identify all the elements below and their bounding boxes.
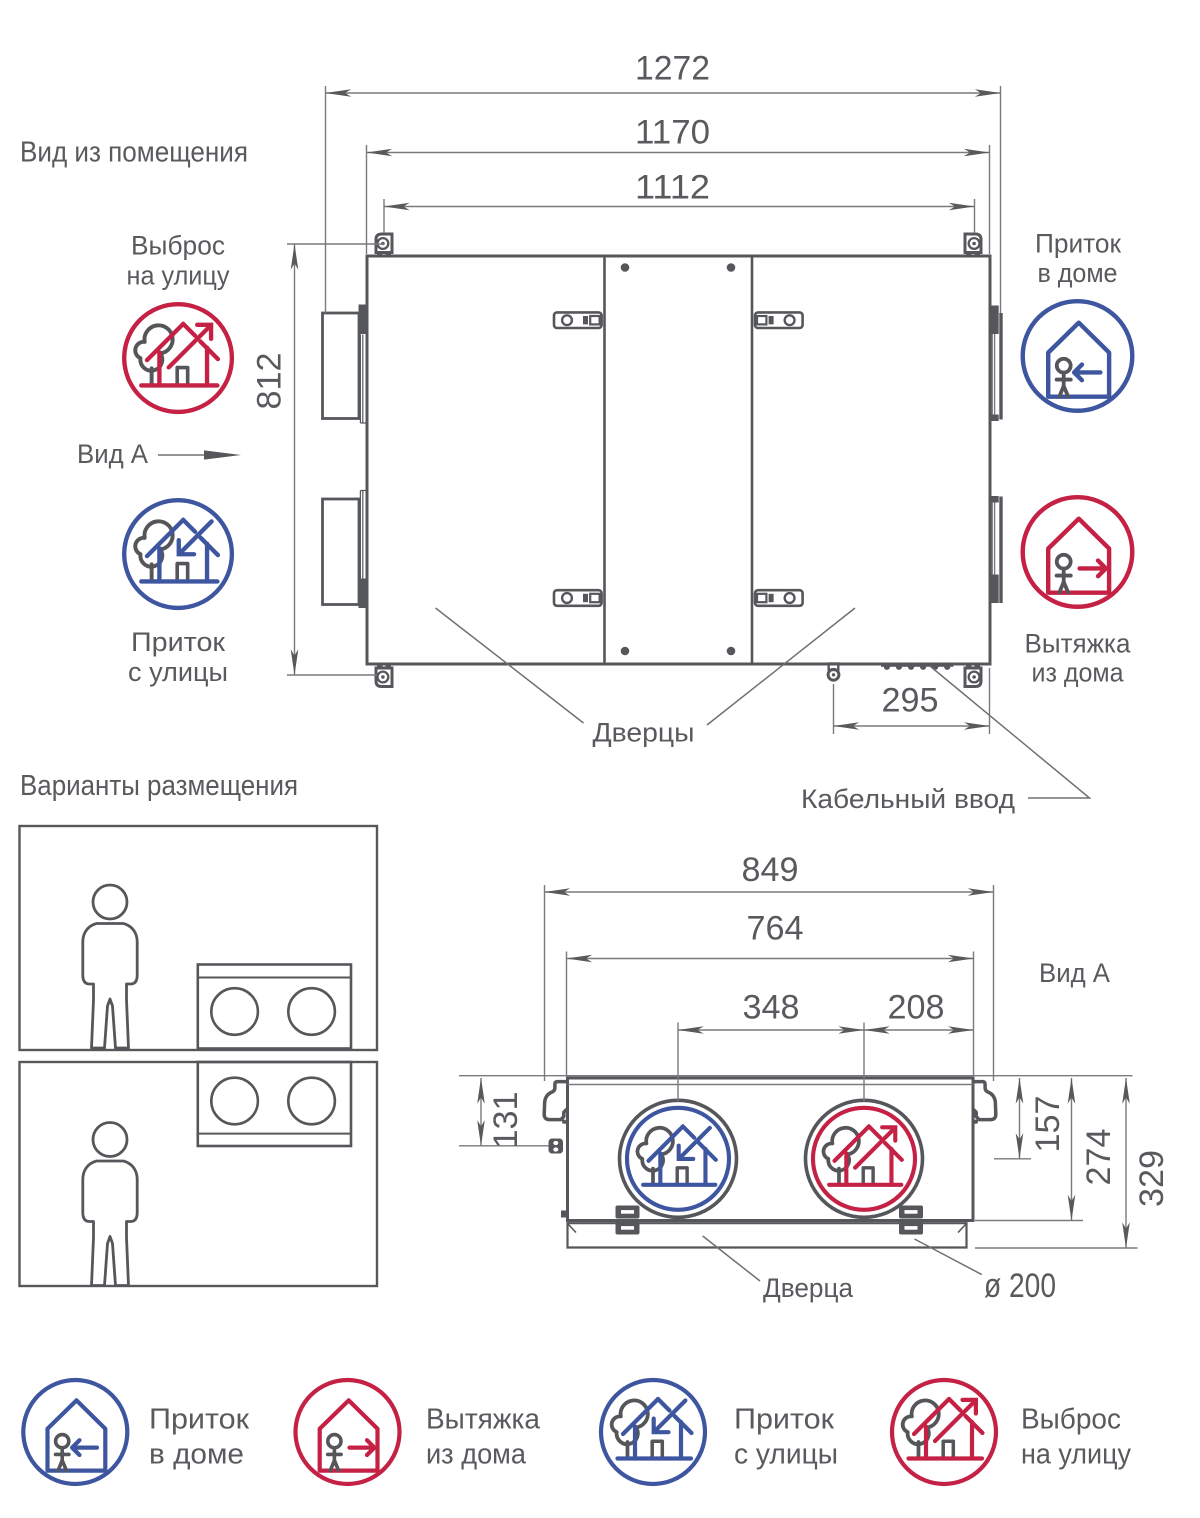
- svg-text:с улицы: с улицы: [734, 1439, 838, 1471]
- svg-text:Вид А: Вид А: [77, 439, 148, 469]
- svg-text:на улицу: на улицу: [127, 260, 230, 290]
- svg-text:1272: 1272: [635, 50, 710, 88]
- svg-text:в доме: в доме: [149, 1439, 244, 1471]
- svg-text:ø 200: ø 200: [984, 1267, 1056, 1305]
- svg-text:Приток: Приток: [1035, 228, 1121, 258]
- svg-text:из дома: из дома: [426, 1439, 527, 1471]
- svg-text:Выброс: Выброс: [131, 231, 225, 261]
- svg-text:из дома: из дома: [1032, 658, 1125, 688]
- svg-text:208: 208: [888, 989, 945, 1027]
- svg-text:Дверца: Дверца: [763, 1273, 854, 1303]
- svg-text:Дверцы: Дверцы: [593, 718, 695, 748]
- svg-text:764: 764: [747, 910, 804, 948]
- svg-text:Приток: Приток: [131, 627, 225, 657]
- svg-text:Выброс: Выброс: [1021, 1404, 1121, 1436]
- svg-text:849: 849: [742, 851, 799, 889]
- svg-text:348: 348: [743, 989, 800, 1027]
- svg-text:Кабельный ввод: Кабельный ввод: [801, 784, 1015, 814]
- svg-text:Вид А: Вид А: [1039, 958, 1110, 988]
- svg-text:1112: 1112: [635, 168, 710, 206]
- svg-text:157: 157: [1029, 1096, 1067, 1153]
- svg-text:Вытяжка: Вытяжка: [426, 1404, 541, 1436]
- svg-text:Приток: Приток: [149, 1404, 249, 1436]
- svg-text:812: 812: [251, 353, 289, 410]
- svg-text:с улицы: с улицы: [128, 657, 228, 687]
- svg-text:329: 329: [1133, 1150, 1171, 1207]
- svg-text:в доме: в доме: [1038, 258, 1118, 288]
- svg-text:295: 295: [882, 682, 939, 720]
- svg-text:274: 274: [1080, 1129, 1118, 1186]
- svg-text:Приток: Приток: [734, 1404, 834, 1436]
- svg-text:Варианты размещения: Варианты размещения: [20, 770, 298, 802]
- svg-text:Вытяжка: Вытяжка: [1025, 629, 1132, 659]
- svg-text:на улицу: на улицу: [1021, 1439, 1131, 1471]
- svg-text:Вид из помещения: Вид из помещения: [20, 136, 248, 168]
- svg-text:131: 131: [487, 1092, 525, 1149]
- svg-text:1170: 1170: [635, 113, 710, 151]
